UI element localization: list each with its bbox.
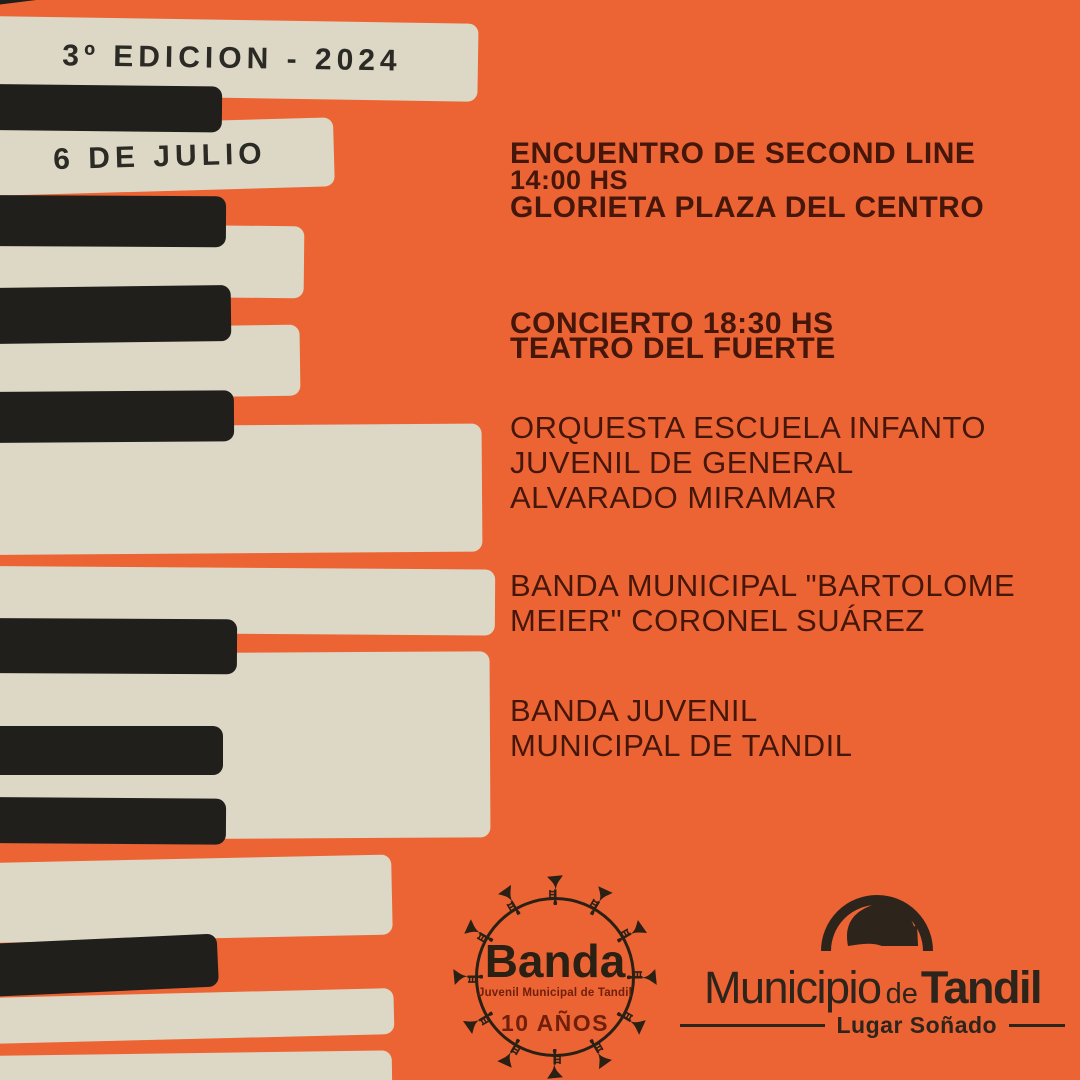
black-key [0,195,226,247]
municipio-tagline: Lugar Soñado [680,1012,1065,1039]
event2-block: CONCIERTO 18:30 HS TEATRO DEL FUERTE [510,311,836,361]
edition-label: 3º EDICION - 2024 [62,39,402,78]
lineup-act1: ORQUESTA ESCUELA INFANTO JUVENIL DE GENE… [510,410,986,515]
lineup-act3: BANDA JUVENIL MUNICIPAL DE TANDIL [510,693,853,763]
lineup-act3-line1: BANDA JUVENIL [510,693,853,728]
tagline-text: Lugar Soñado [837,1012,998,1039]
lineup-act2: BANDA MUNICIPAL "BARTOLOME MEIER" CORONE… [510,568,1015,638]
event1-time: 14:00 HS [510,167,984,194]
black-key [0,726,223,775]
lineup-act2-line2: MEIER" CORONEL SUÁREZ [510,603,1015,638]
event-poster: 3º EDICION - 2024 6 DE JULIO ENCUENTRO D… [0,0,1080,1080]
banda-logo-subtitle: Juvenil Municipal de Tandil [478,987,632,999]
black-key [0,285,231,344]
tagline-rule-right [1009,1024,1065,1027]
municipio-word: Municipio [704,962,881,1014]
lineup-act2-line1: BANDA MUNICIPAL "BARTOLOME [510,568,1015,603]
white-key [0,855,393,943]
banda-logo-anniversary: 10 AÑOS [501,1010,609,1037]
lineup-act1-line3: ALVARADO MIRAMAR [510,480,986,515]
black-key [0,84,222,132]
lineup-act1-line1: ORQUESTA ESCUELA INFANTO [510,410,986,445]
black-key [0,0,91,8]
lineup-act3-line2: MUNICIPAL DE TANDIL [510,728,853,763]
event1-venue: GLORIETA PLAZA DEL CENTRO [510,194,984,221]
de-word: de [886,978,918,1011]
tandil-word: Tandil [921,962,1041,1014]
municipio-wordmark: Municipio de Tandil [688,962,1057,1014]
event1-block: ENCUENTRO DE SECOND LINE 14:00 HS GLORIE… [510,140,984,221]
banda-logo-name: Banda [485,938,626,984]
white-key [0,1050,392,1080]
banda-logo-circle: Banda Juvenil Municipal de Tandil 10 AÑO… [475,897,635,1057]
black-key [0,390,234,443]
event2-venue: TEATRO DEL FUERTE [510,336,836,361]
white-key [0,424,482,555]
banda-anniversary-logo: Banda Juvenil Municipal de Tandil 10 AÑO… [475,897,635,1057]
lineup-act1-line2: JUVENIL DE GENERAL [510,445,986,480]
black-key [0,797,226,845]
black-key [0,618,237,674]
date-label: 6 DE JULIO [53,137,267,177]
white-key [0,988,394,1044]
event1-title: ENCUENTRO DE SECOND LINE [510,140,984,167]
black-key [0,934,219,997]
tagline-rule-left [680,1024,825,1027]
piedra-movediza-arch-icon [818,872,936,952]
